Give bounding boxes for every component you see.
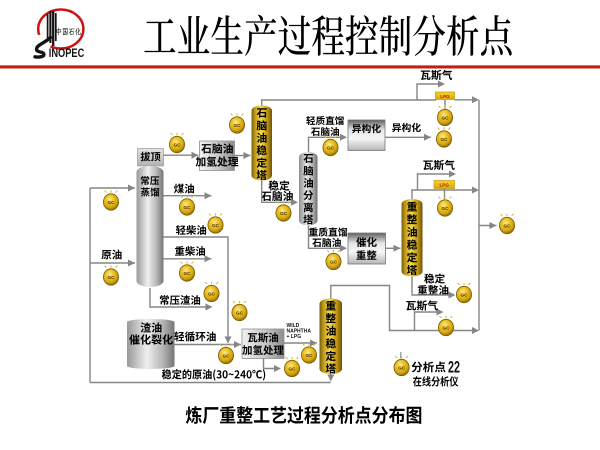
svg-text:GC: GC (398, 365, 406, 370)
svg-text:GC: GC (327, 145, 335, 150)
svg-text:GC: GC (288, 366, 296, 371)
svg-text:GC: GC (107, 275, 115, 280)
svg-text:GC: GC (305, 353, 313, 358)
svg-text:GC: GC (107, 200, 115, 205)
svg-text:LPG: LPG (439, 183, 449, 188)
svg-text:GC: GC (236, 310, 244, 315)
svg-text:GC: GC (208, 291, 216, 296)
svg-text:GC: GC (440, 137, 448, 142)
svg-text:GC: GC (441, 115, 449, 120)
svg-text:INOPEC: INOPEC (49, 46, 85, 60)
svg-text:GC: GC (173, 142, 181, 147)
svg-text:GC: GC (503, 223, 511, 228)
svg-text:GC: GC (441, 206, 449, 211)
svg-text:GC: GC (183, 205, 191, 210)
svg-text:GC: GC (212, 223, 220, 228)
svg-text:GC: GC (280, 211, 288, 216)
svg-text:GC: GC (460, 292, 468, 297)
svg-text:WILDNAPHTHA+ LPG: WILDNAPHTHA+ LPG (287, 323, 312, 340)
svg-text:GC: GC (233, 123, 241, 128)
svg-text:22: 22 (448, 359, 460, 377)
svg-text:GC: GC (183, 271, 191, 276)
svg-text:LPG: LPG (440, 94, 450, 99)
svg-text:GC: GC (222, 353, 230, 358)
svg-text:GC: GC (330, 259, 338, 264)
svg-text:GC: GC (442, 325, 450, 330)
